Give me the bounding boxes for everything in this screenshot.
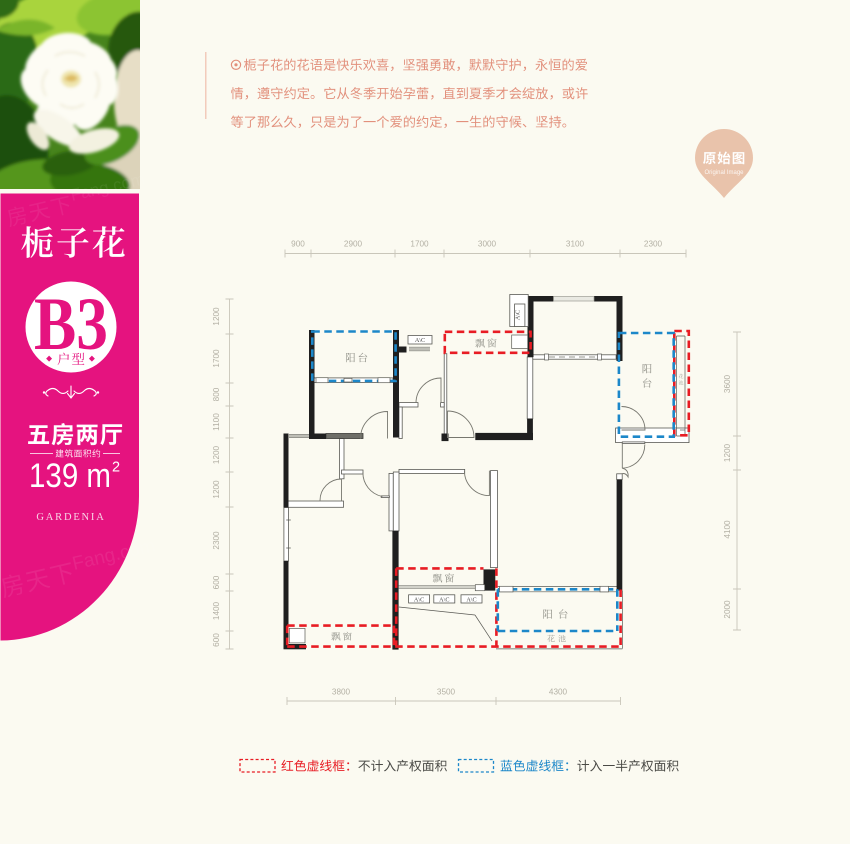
svg-text:800: 800: [212, 387, 221, 401]
svg-text:2900: 2900: [344, 240, 363, 249]
svg-text:1700: 1700: [212, 349, 221, 368]
svg-text:2300: 2300: [644, 240, 663, 249]
svg-text:A\C: A\C: [439, 596, 449, 603]
svg-text:A\C: A\C: [415, 337, 425, 344]
svg-text:900: 900: [291, 240, 305, 249]
svg-text:3000: 3000: [478, 240, 497, 249]
svg-text:1200: 1200: [723, 443, 732, 462]
svg-text:GARDENIA: GARDENIA: [36, 512, 105, 523]
svg-text:139 m: 139 m: [29, 457, 111, 495]
svg-text:A\C: A\C: [466, 596, 476, 603]
svg-text:A\C: A\C: [515, 310, 522, 320]
svg-text:B3: B3: [34, 283, 108, 366]
svg-text:3800: 3800: [332, 688, 351, 697]
svg-text:600: 600: [212, 575, 221, 589]
svg-text:Original Image: Original Image: [704, 170, 744, 176]
svg-text:1700: 1700: [410, 240, 429, 249]
svg-text:1100: 1100: [212, 413, 221, 431]
svg-text:1200: 1200: [212, 445, 221, 464]
svg-text:2000: 2000: [723, 600, 732, 619]
svg-text:4100: 4100: [723, 520, 732, 539]
svg-text:1200: 1200: [212, 480, 221, 499]
svg-text:2300: 2300: [212, 531, 221, 550]
svg-text:4300: 4300: [549, 688, 568, 697]
svg-text:2: 2: [112, 460, 120, 476]
svg-text:A\C: A\C: [414, 596, 424, 603]
svg-text:1400: 1400: [212, 601, 221, 620]
svg-text:1200: 1200: [212, 307, 221, 326]
svg-text:3100: 3100: [566, 240, 585, 249]
svg-text:3600: 3600: [723, 374, 732, 393]
svg-text:3500: 3500: [437, 688, 456, 697]
svg-text:600: 600: [212, 633, 221, 647]
